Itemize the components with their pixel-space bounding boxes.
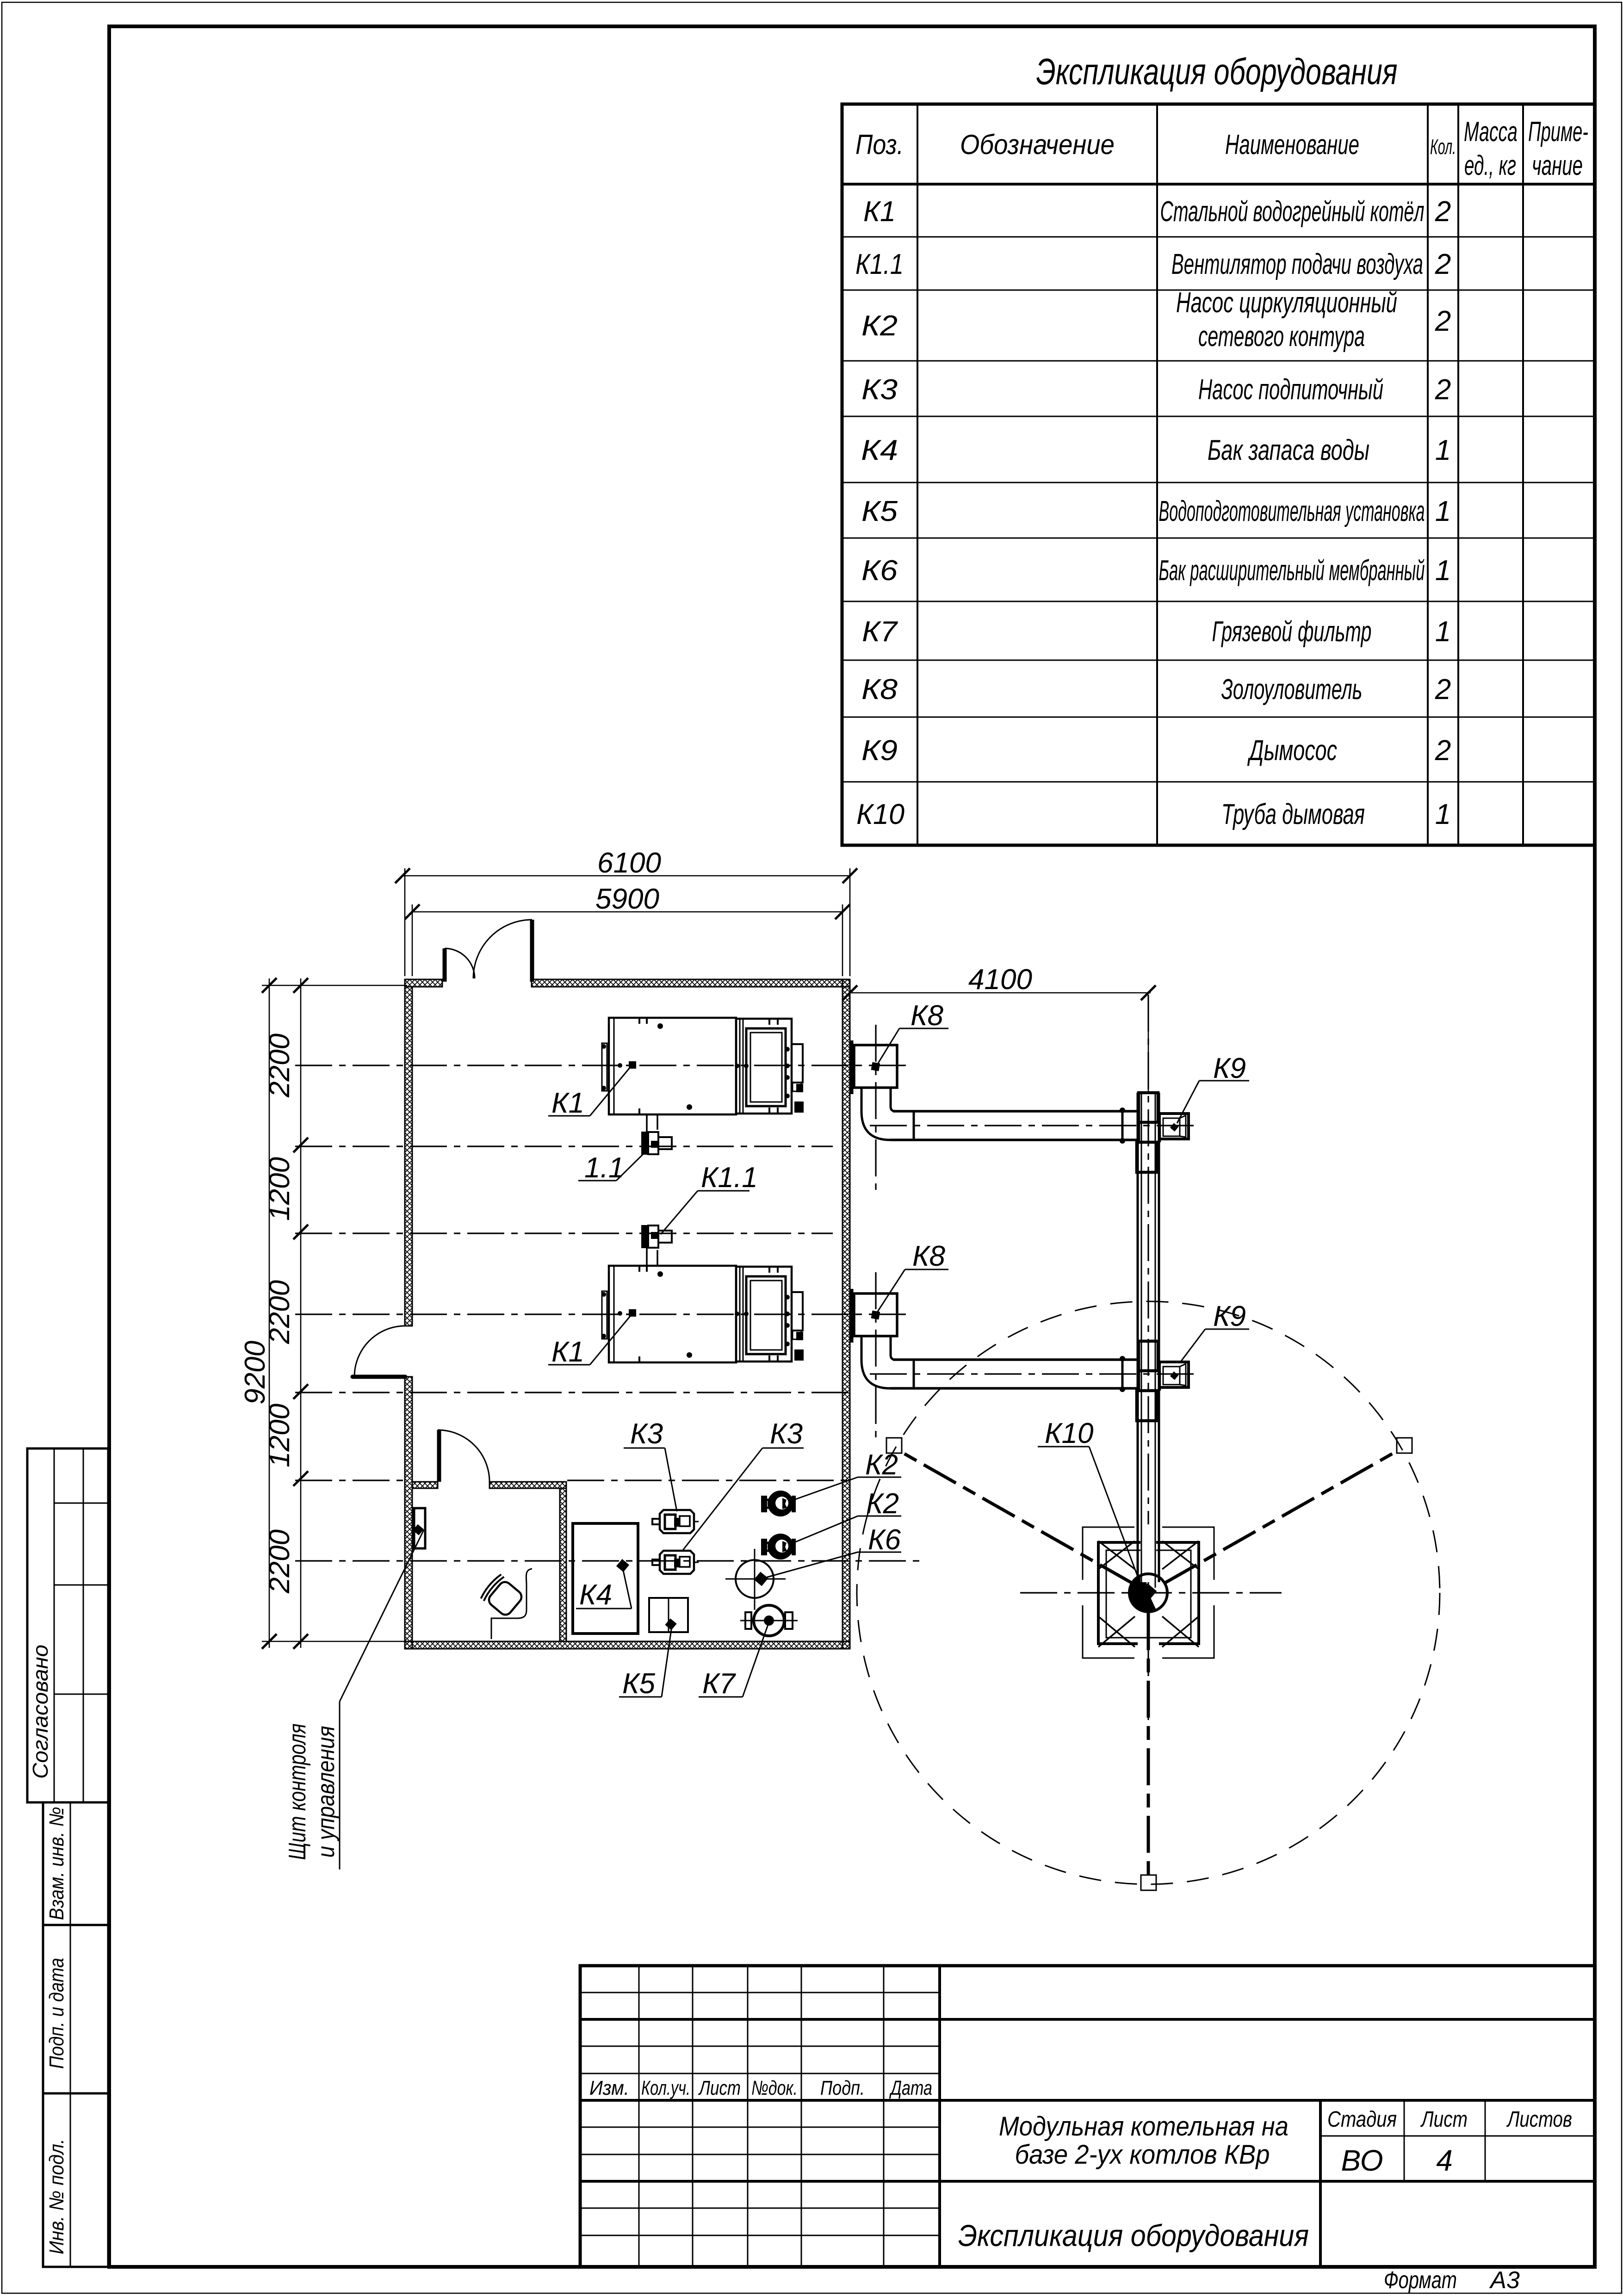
svg-text:Кол.: Кол. [1430, 135, 1456, 159]
svg-text:К5: К5 [622, 1668, 656, 1700]
svg-text:Насос циркуляционный: Насос циркуляционный [1176, 287, 1397, 319]
svg-text:Экспликация оборудования: Экспликация оборудования [958, 2218, 1309, 2253]
svg-text:К2: К2 [861, 310, 898, 342]
svg-text:Бак расширительный мембранный: Бак расширительный мембранный [1159, 555, 1425, 587]
svg-text:Инв. № подл.: Инв. № подл. [45, 2139, 68, 2254]
svg-text:К1: К1 [863, 196, 896, 228]
svg-text:4100: 4100 [968, 964, 1032, 996]
svg-text:Модульная котельная на: Модульная котельная на [999, 2111, 1288, 2141]
svg-text:1: 1 [1435, 616, 1451, 648]
svg-text:Дата: Дата [889, 2077, 932, 2099]
svg-text:Взам. инв. №: Взам. инв. № [45, 1807, 68, 1920]
svg-text:Бак запаса воды: Бак запаса воды [1208, 434, 1369, 466]
svg-text:К7: К7 [862, 616, 898, 648]
svg-text:и управления: и управления [313, 1726, 340, 1858]
svg-text:ед., кг: ед., кг [1464, 150, 1516, 181]
svg-text:сетевого контура: сетевого контура [1198, 321, 1365, 353]
svg-text:2200: 2200 [264, 1280, 296, 1344]
svg-text:2: 2 [1435, 248, 1451, 280]
svg-text:1: 1 [1435, 434, 1451, 466]
svg-text:К8: К8 [861, 674, 898, 706]
svg-text:Лист: Лист [698, 2077, 741, 2099]
svg-text:К1.1: К1.1 [855, 248, 904, 280]
svg-text:К3: К3 [861, 374, 898, 406]
svg-text:чание: чание [1532, 150, 1583, 181]
svg-text:Экспликация оборудования: Экспликация оборудования [1036, 51, 1398, 92]
svg-text:К10: К10 [856, 798, 904, 830]
svg-text:9200: 9200 [239, 1341, 271, 1405]
svg-text:Кол.уч.: Кол.уч. [641, 2077, 690, 2099]
svg-text:4: 4 [1436, 2144, 1453, 2177]
svg-text:Согласовано: Согласовано [28, 1645, 52, 1779]
svg-text:Подп.: Подп. [820, 2077, 865, 2099]
svg-text:1: 1 [1435, 555, 1451, 587]
svg-text:К5: К5 [861, 495, 898, 527]
svg-text:Золоуловитель: Золоуловитель [1221, 674, 1363, 706]
svg-text:Листов: Листов [1506, 2107, 1572, 2132]
svg-text:1200: 1200 [264, 1157, 296, 1221]
svg-text:К3: К3 [630, 1418, 663, 1450]
svg-text:Щит контроля: Щит контроля [284, 1724, 311, 1860]
svg-text:К2: К2 [866, 1488, 899, 1520]
svg-text:№док.: №док. [751, 2077, 798, 2099]
svg-text:2: 2 [1435, 735, 1451, 767]
svg-text:6100: 6100 [597, 847, 661, 879]
svg-text:К3: К3 [770, 1418, 803, 1450]
svg-text:1: 1 [1435, 495, 1451, 527]
svg-text:К6: К6 [868, 1524, 901, 1556]
svg-text:1.1: 1.1 [584, 1152, 624, 1184]
svg-text:5900: 5900 [595, 883, 659, 915]
svg-text:Изм.: Изм. [589, 2077, 629, 2099]
svg-text:Дымосос: Дымосос [1247, 735, 1337, 767]
svg-text:К8: К8 [912, 1240, 946, 1272]
svg-text:Наименование: Наименование [1225, 129, 1359, 160]
svg-text:Поз.: Поз. [855, 129, 904, 160]
svg-text:К9: К9 [1213, 1300, 1246, 1332]
svg-text:Вентилятор подачи воздуха: Вентилятор подачи воздуха [1171, 248, 1423, 280]
svg-text:К4: К4 [861, 434, 898, 466]
svg-text:К7: К7 [702, 1668, 737, 1700]
svg-text:К1: К1 [551, 1336, 584, 1368]
svg-text:К1: К1 [551, 1087, 584, 1119]
svg-text:К6: К6 [861, 555, 898, 587]
svg-text:А3: А3 [1489, 2267, 1520, 2294]
svg-text:К9: К9 [1213, 1052, 1246, 1084]
svg-text:К4: К4 [579, 1579, 612, 1611]
svg-text:К2: К2 [865, 1449, 898, 1481]
svg-text:Подп. и дата: Подп. и дата [45, 1958, 68, 2069]
svg-text:Приме-: Приме- [1528, 116, 1588, 147]
svg-text:2: 2 [1435, 374, 1451, 406]
svg-text:2200: 2200 [264, 1529, 296, 1594]
svg-text:2: 2 [1435, 674, 1451, 706]
svg-text:Труба дымовая: Труба дымовая [1221, 798, 1365, 830]
svg-text:К1.1: К1.1 [701, 1162, 758, 1194]
svg-text:К10: К10 [1045, 1417, 1094, 1449]
svg-text:2200: 2200 [264, 1034, 296, 1098]
svg-text:1: 1 [1435, 798, 1451, 830]
svg-text:базе 2-ух котлов КВр: базе 2-ух котлов КВр [1015, 2140, 1270, 2170]
svg-text:Обозначение: Обозначение [960, 129, 1115, 160]
svg-text:К9: К9 [861, 735, 898, 767]
svg-text:Масса: Масса [1464, 116, 1518, 147]
svg-text:2: 2 [1435, 305, 1451, 337]
svg-text:1200: 1200 [264, 1404, 296, 1467]
svg-text:Лист: Лист [1420, 2107, 1468, 2132]
svg-text:Насос подпиточный: Насос подпиточный [1198, 374, 1383, 406]
svg-text:Формат: Формат [1384, 2267, 1457, 2294]
svg-text:ВО: ВО [1341, 2144, 1383, 2177]
svg-text:К8: К8 [911, 1000, 944, 1032]
svg-text:2: 2 [1435, 196, 1451, 228]
svg-text:Стальной водогрейный котёл: Стальной водогрейный котёл [1160, 196, 1425, 228]
svg-text:Грязевой фильтр: Грязевой фильтр [1212, 616, 1372, 648]
svg-text:Водоподготовительная установка: Водоподготовительная установка [1159, 495, 1425, 527]
svg-text:Стадия: Стадия [1327, 2107, 1397, 2132]
